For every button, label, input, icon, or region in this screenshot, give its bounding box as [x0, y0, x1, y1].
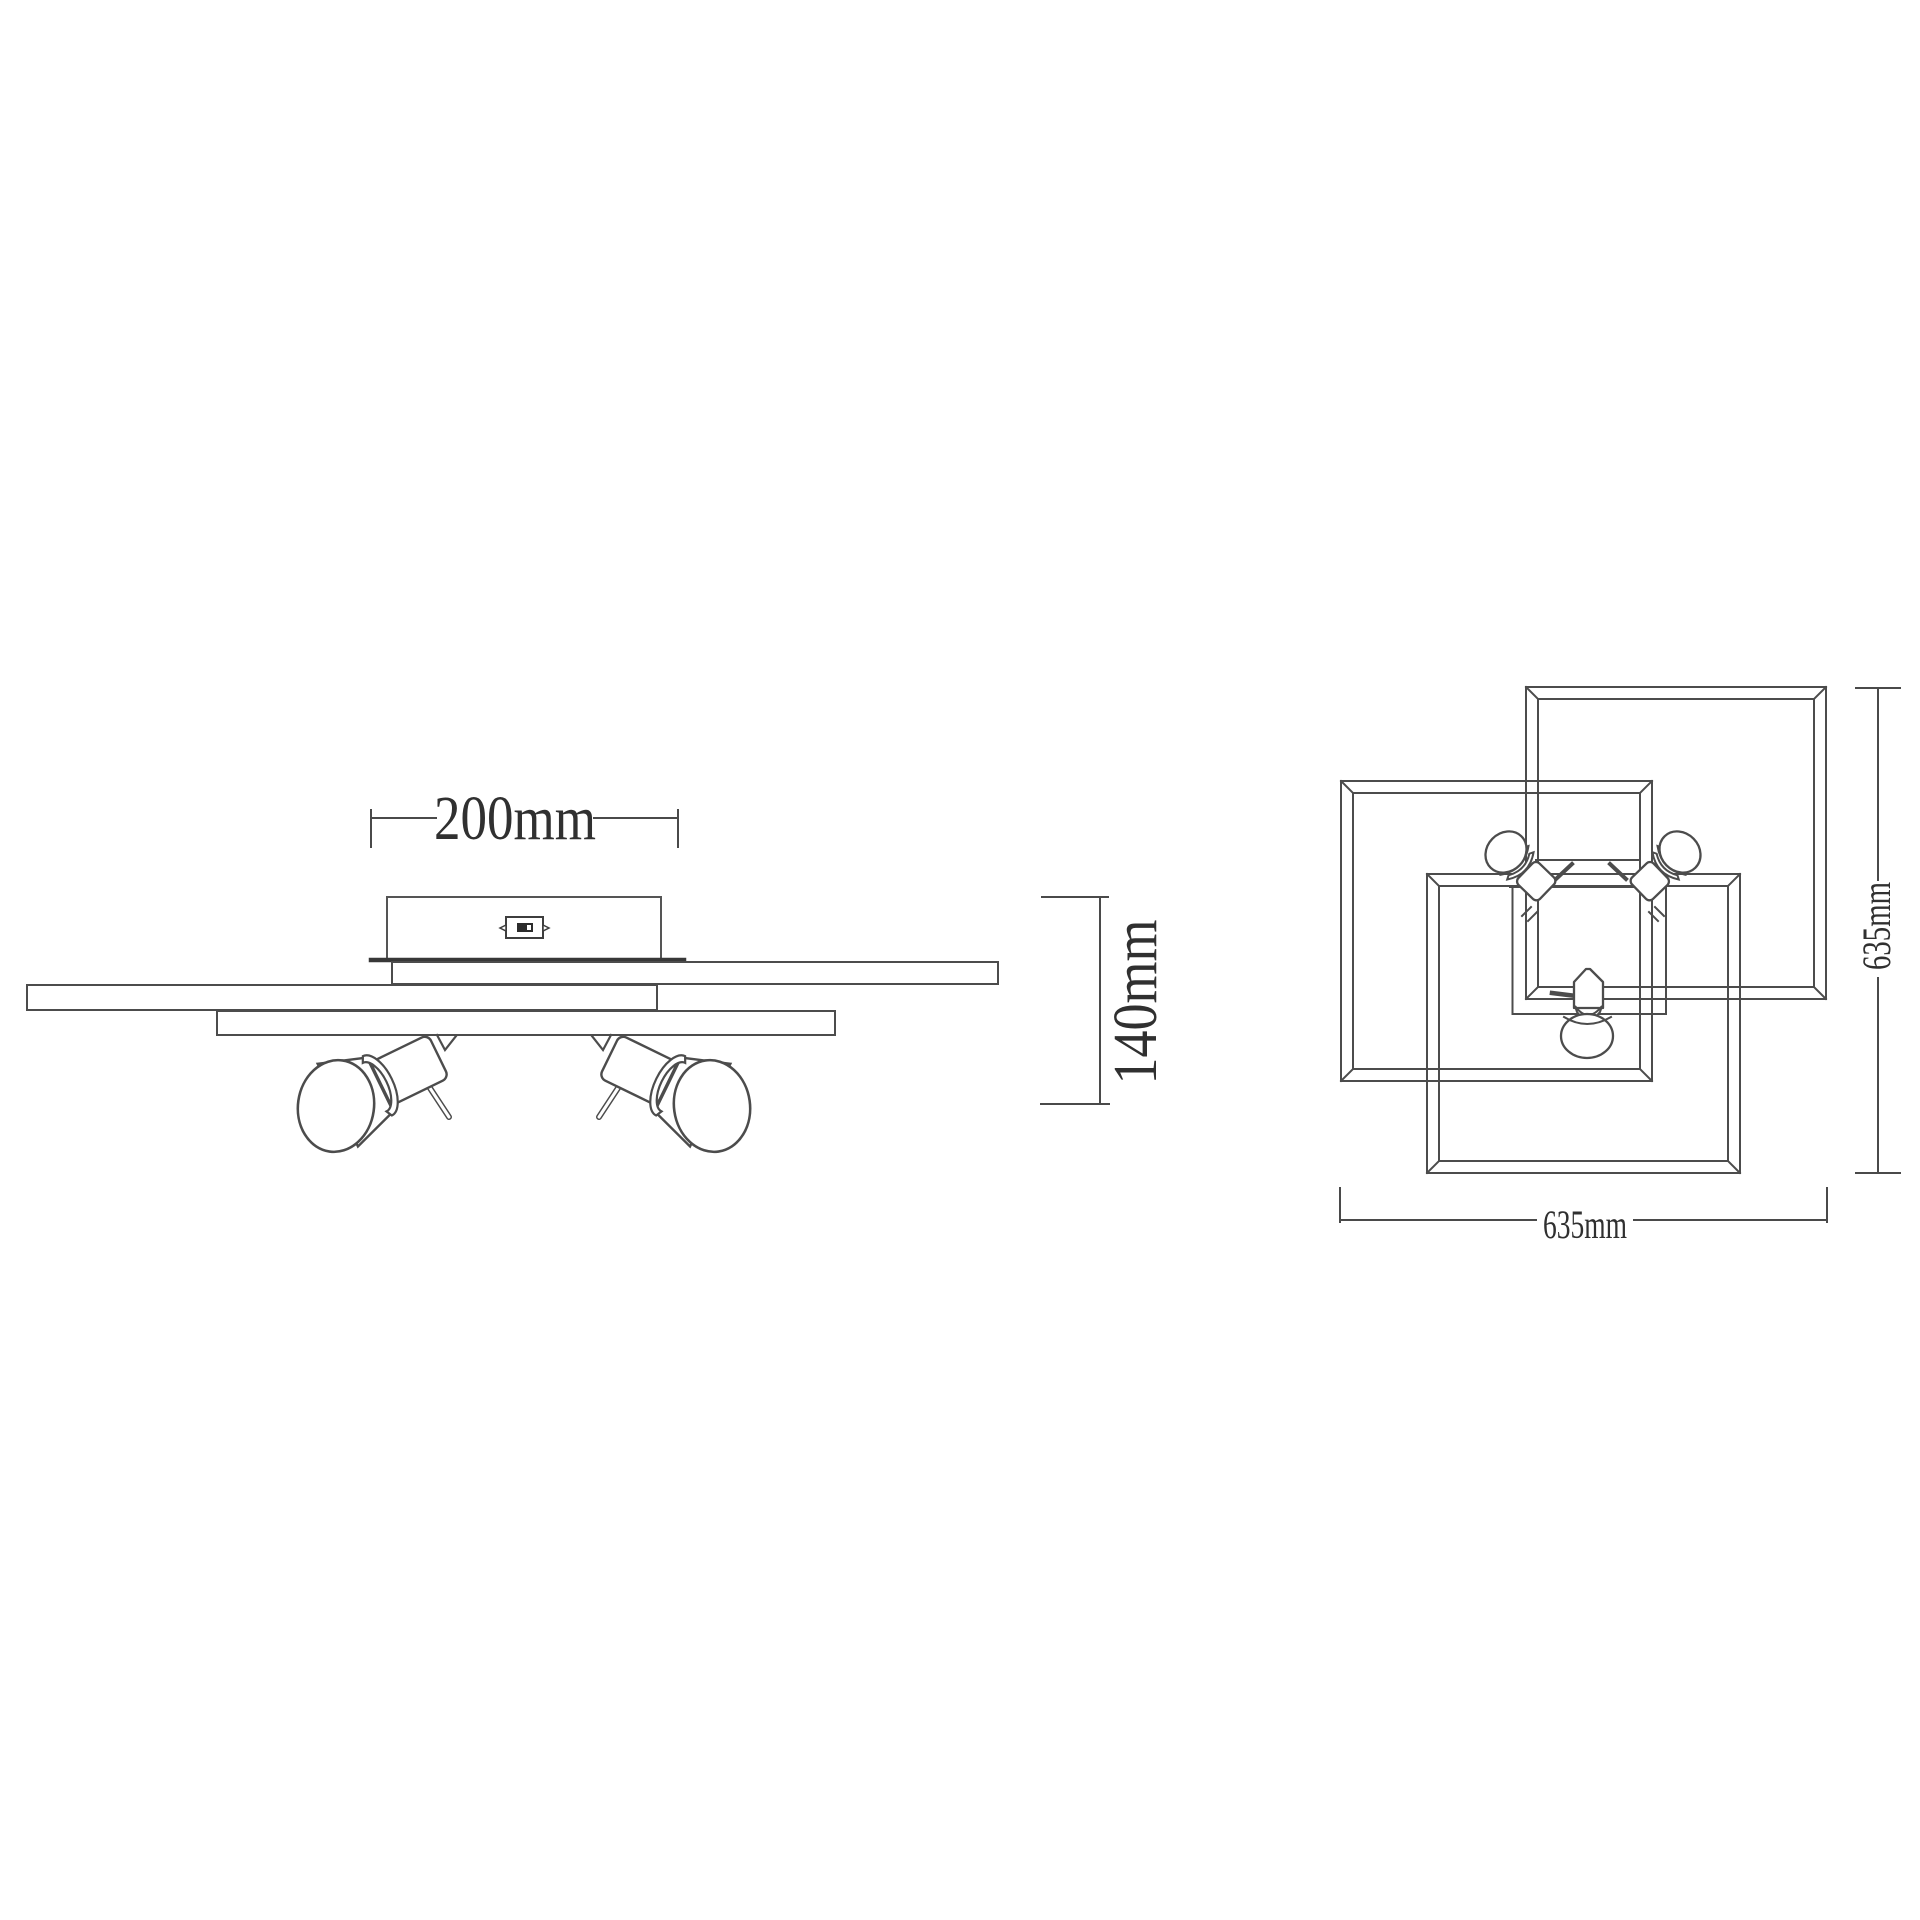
- svg-text:140mm: 140mm: [1102, 920, 1170, 1085]
- svg-text:635mm: 635mm: [1854, 882, 1899, 970]
- svg-text:200mm: 200mm: [434, 785, 596, 853]
- svg-text:635mm: 635mm: [1543, 1202, 1627, 1247]
